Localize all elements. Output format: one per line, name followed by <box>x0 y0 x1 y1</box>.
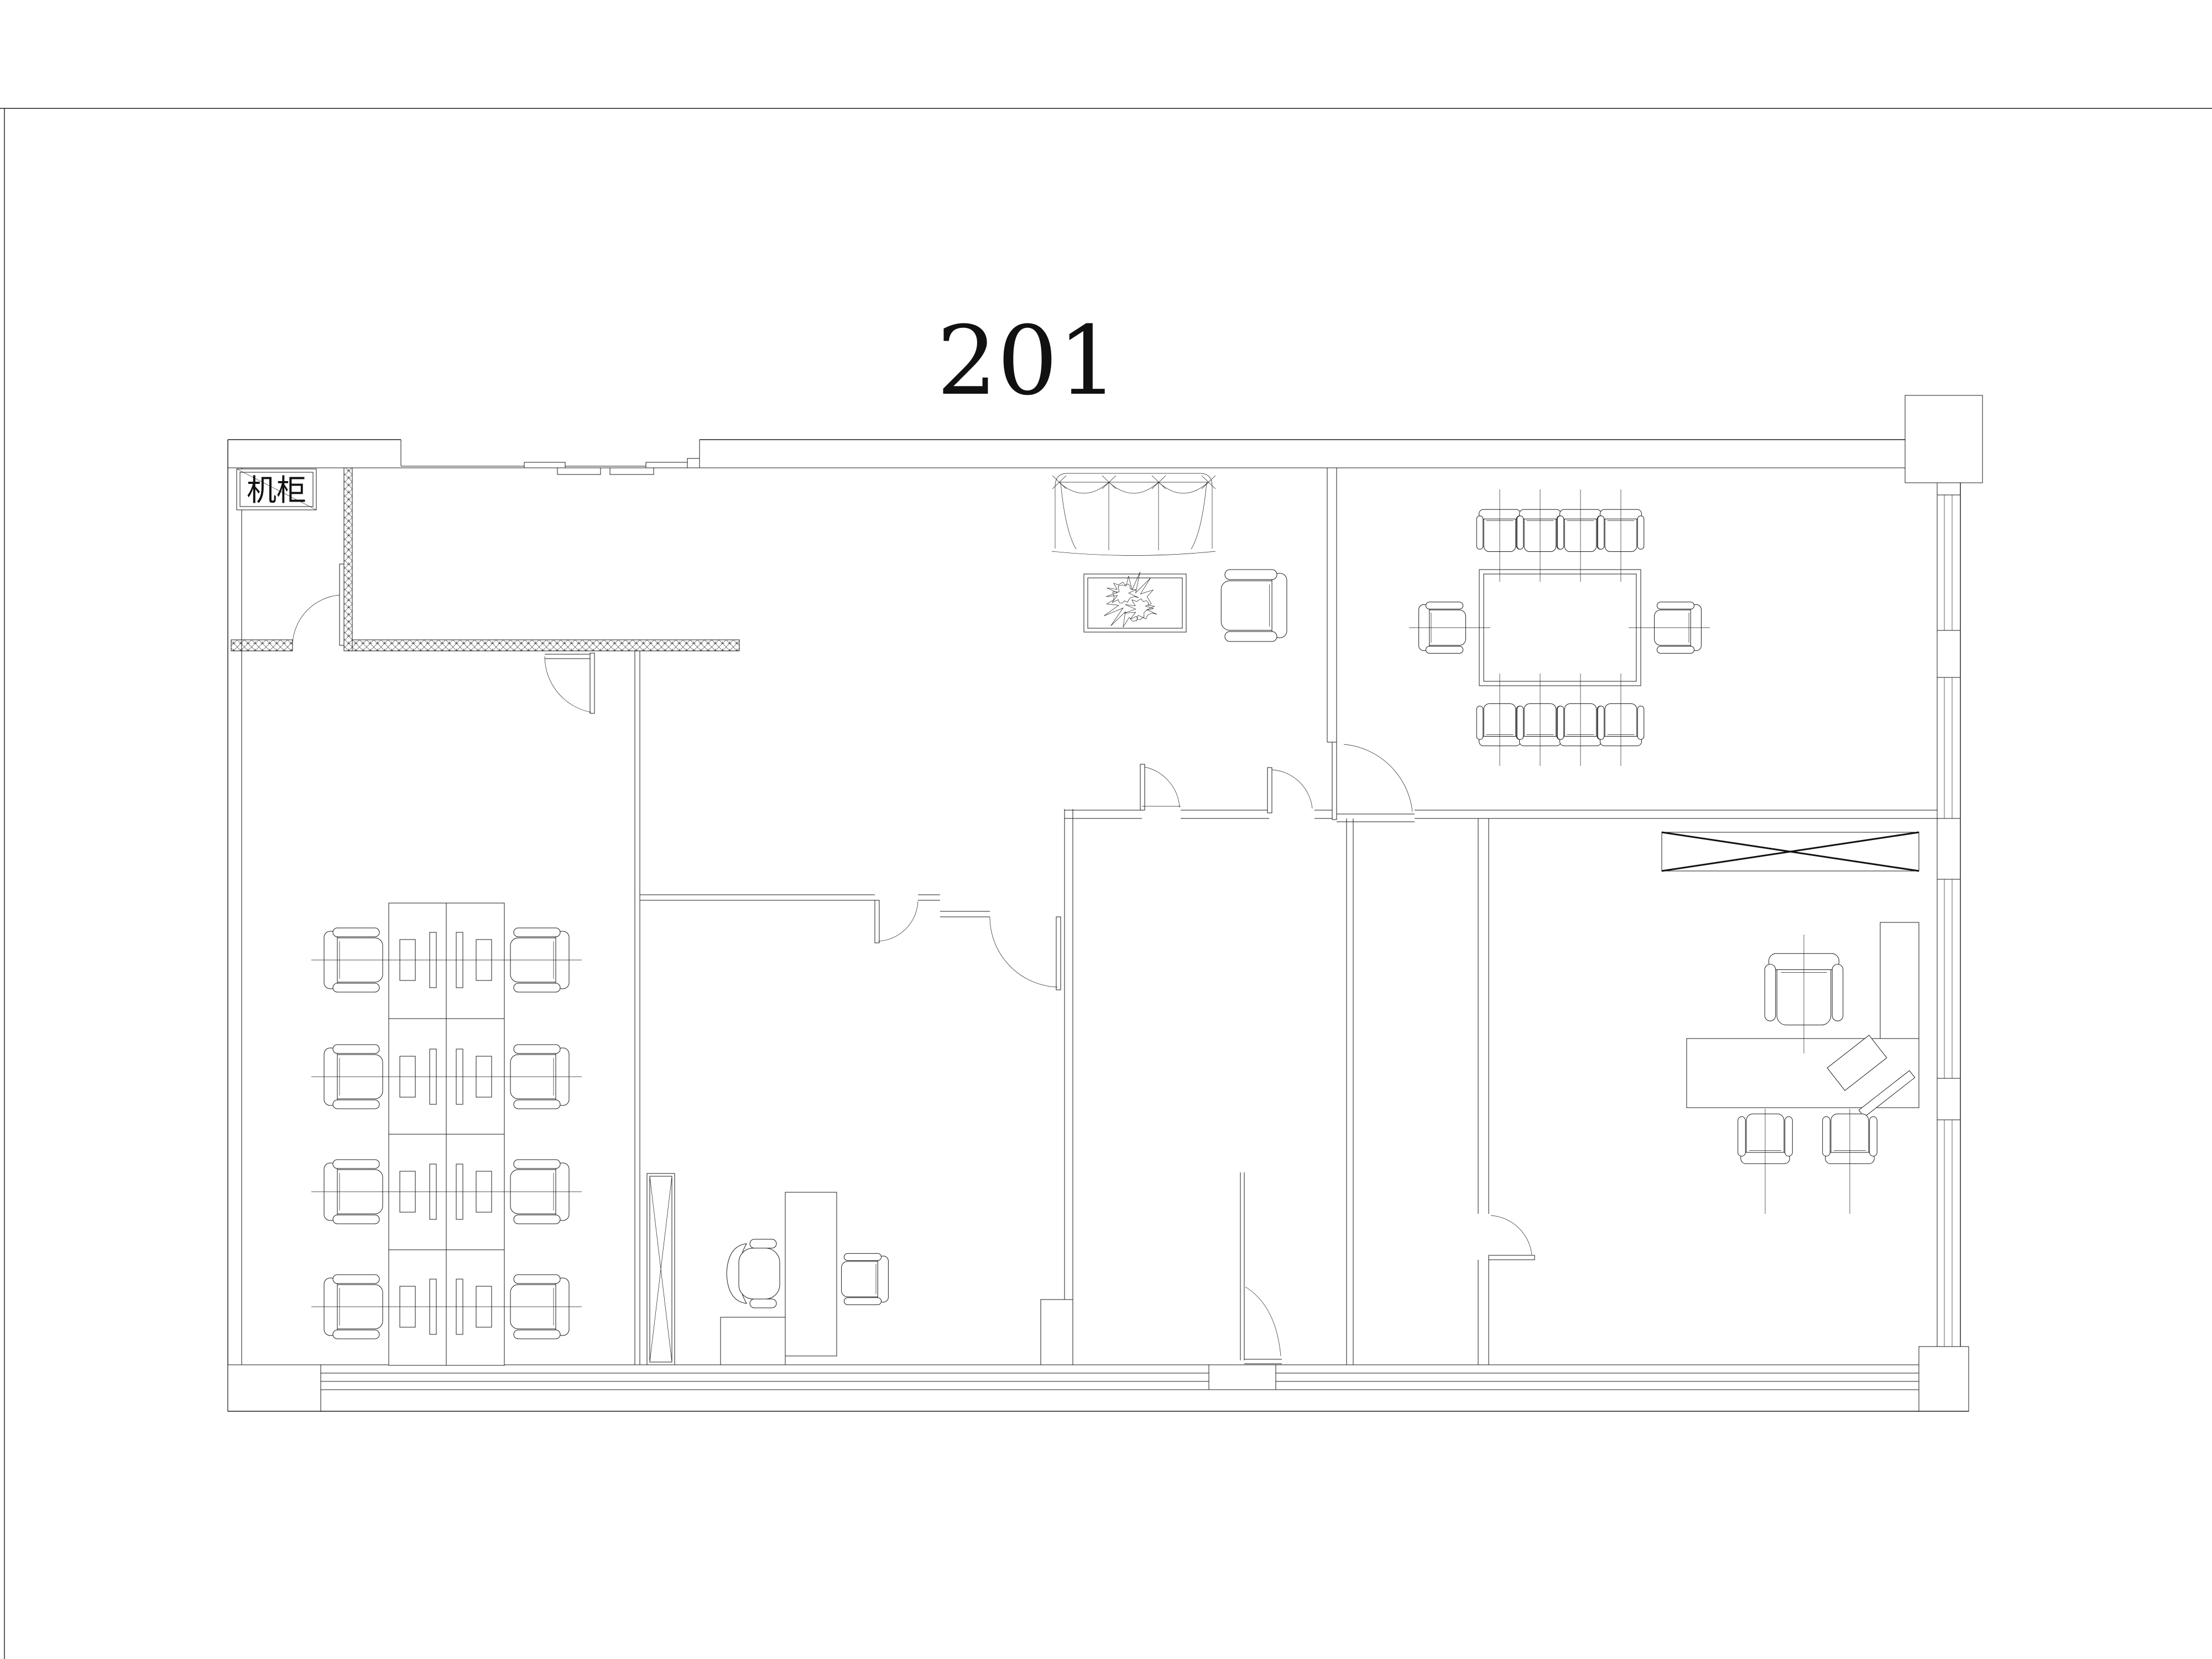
door-swing-icon meeting-room-door-a <box>1140 764 1181 810</box>
right-wall-window-band <box>1919 483 1969 1411</box>
door-swing-icon corridor-door <box>545 653 594 713</box>
cad-floor-plan-page: 201 <box>0 0 2212 1659</box>
door-swing-icon right-office-door <box>1489 1215 1535 1260</box>
lobby-armchair-icon <box>1221 570 1287 641</box>
server-room-label: 机柜 <box>237 469 316 510</box>
bottom-wall-window-band <box>228 1365 1969 1411</box>
door-swing-icon meeting-room-door-b <box>1267 768 1312 813</box>
door-swing-icon center-office-door-2 <box>990 917 1061 990</box>
executive-chair-icon <box>727 1239 780 1308</box>
plan-title: 201 <box>937 305 1118 416</box>
storage-cabinet-x-icon <box>647 1173 675 1365</box>
floor-plan-drawing: 201 <box>0 0 2212 1659</box>
door-swing-icon balcony-door <box>1244 1287 1282 1364</box>
hatched-wall-icon <box>352 640 739 651</box>
hatched-wall-icon <box>231 640 293 651</box>
visitor-chair-icon <box>842 1254 889 1305</box>
corner-column <box>1905 395 1983 483</box>
hatched-wall-icon <box>344 468 352 651</box>
server-room-tag-text: 机柜 <box>247 473 306 508</box>
wall-cabinet-icon <box>1880 922 1919 1039</box>
curtain-icon <box>1052 473 1215 556</box>
conference-table-icon <box>1479 570 1641 686</box>
door-swing-icon conference-room-door <box>1332 742 1415 822</box>
furniture-placed <box>324 509 1877 1339</box>
side-table-icon <box>1084 574 1186 632</box>
door-swing-icon server-room-door <box>293 564 344 645</box>
storage-cabinet-x-icon <box>1662 832 1919 871</box>
door-swing-icon center-office-door <box>875 900 918 943</box>
